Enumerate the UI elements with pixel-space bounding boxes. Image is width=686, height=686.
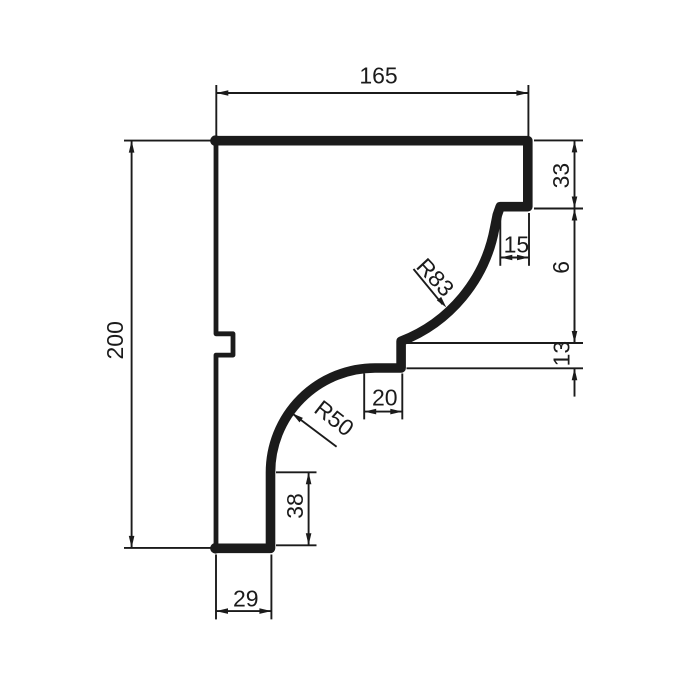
svg-text:38: 38 <box>282 493 308 519</box>
svg-text:20: 20 <box>372 385 398 411</box>
svg-text:6: 6 <box>548 261 574 274</box>
svg-text:13: 13 <box>548 341 574 367</box>
svg-text:165: 165 <box>359 63 397 89</box>
svg-text:29: 29 <box>233 586 259 612</box>
svg-text:200: 200 <box>102 321 128 359</box>
svg-text:33: 33 <box>548 163 574 189</box>
svg-text:15: 15 <box>504 232 530 258</box>
